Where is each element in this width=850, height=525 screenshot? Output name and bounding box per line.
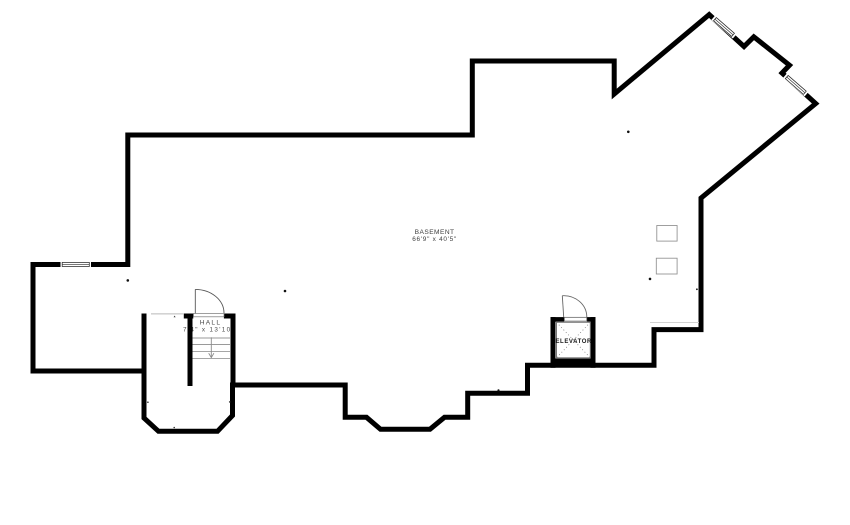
svg-text:ELEVATOR: ELEVATOR <box>555 339 592 345</box>
svg-text:HALL: HALL <box>200 319 222 326</box>
svg-text:66'9" x 40'5": 66'9" x 40'5" <box>412 236 457 243</box>
svg-text:BASEMENT: BASEMENT <box>415 229 455 236</box>
